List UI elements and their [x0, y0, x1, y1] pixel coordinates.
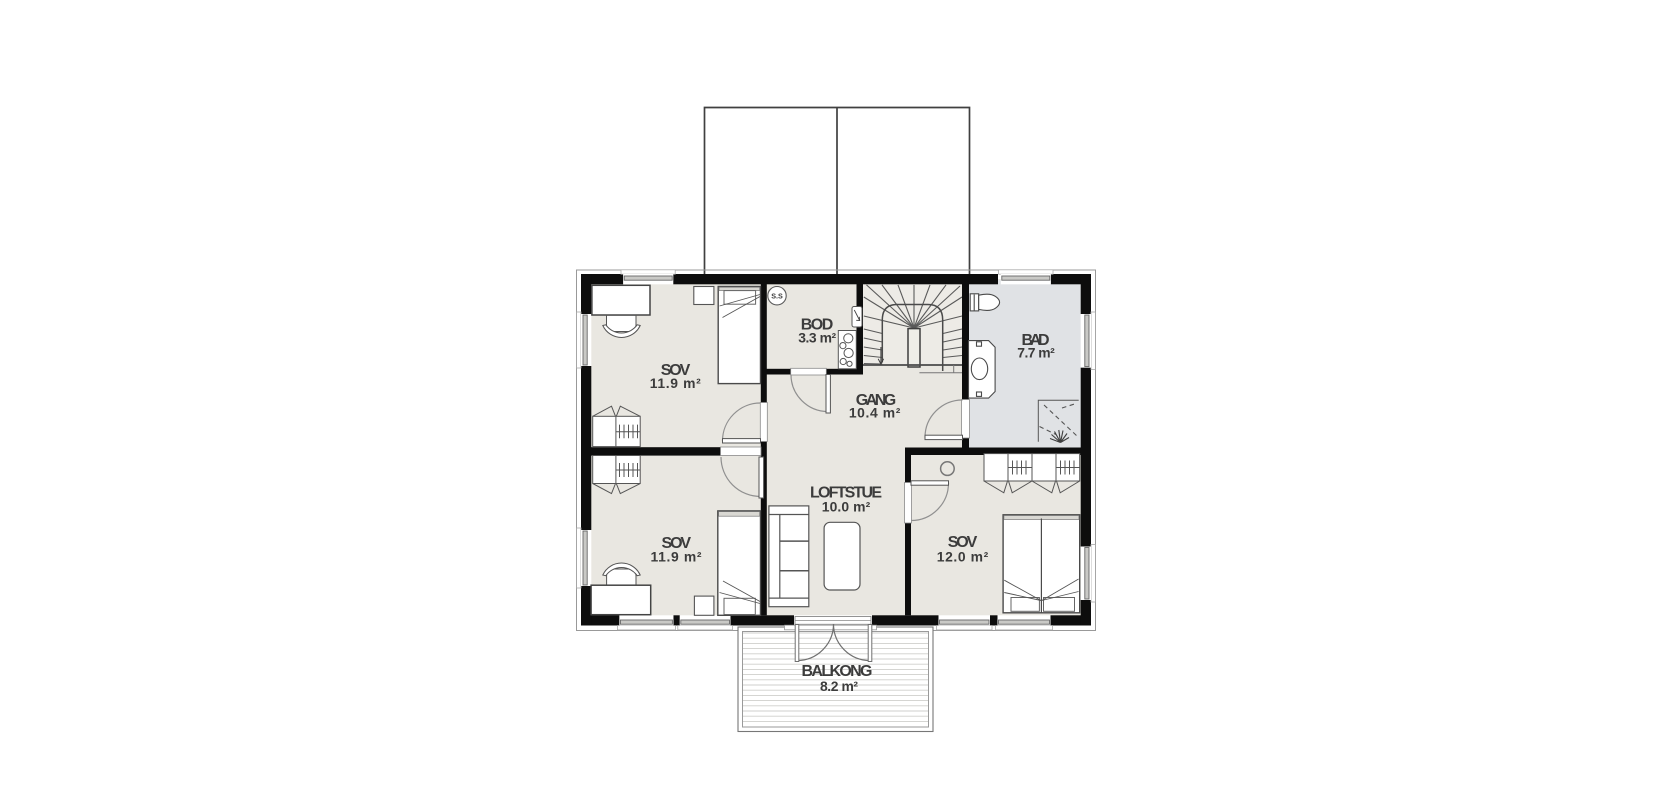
svg-text:11.9 m²: 11.9 m²	[650, 375, 701, 391]
svg-text:10.4 m²: 10.4 m²	[849, 404, 901, 420]
svg-text:7.7 m²: 7.7 m²	[1017, 345, 1055, 361]
svg-text:11.9 m²: 11.9 m²	[651, 548, 702, 564]
svg-text:8.2 m²: 8.2 m²	[820, 678, 858, 694]
svg-text:3.3 m²: 3.3 m²	[798, 329, 836, 345]
svg-text:S.S: S.S	[771, 291, 783, 300]
svg-text:12.0 m²: 12.0 m²	[937, 548, 989, 564]
svg-text:10.0 m²: 10.0 m²	[822, 499, 871, 515]
